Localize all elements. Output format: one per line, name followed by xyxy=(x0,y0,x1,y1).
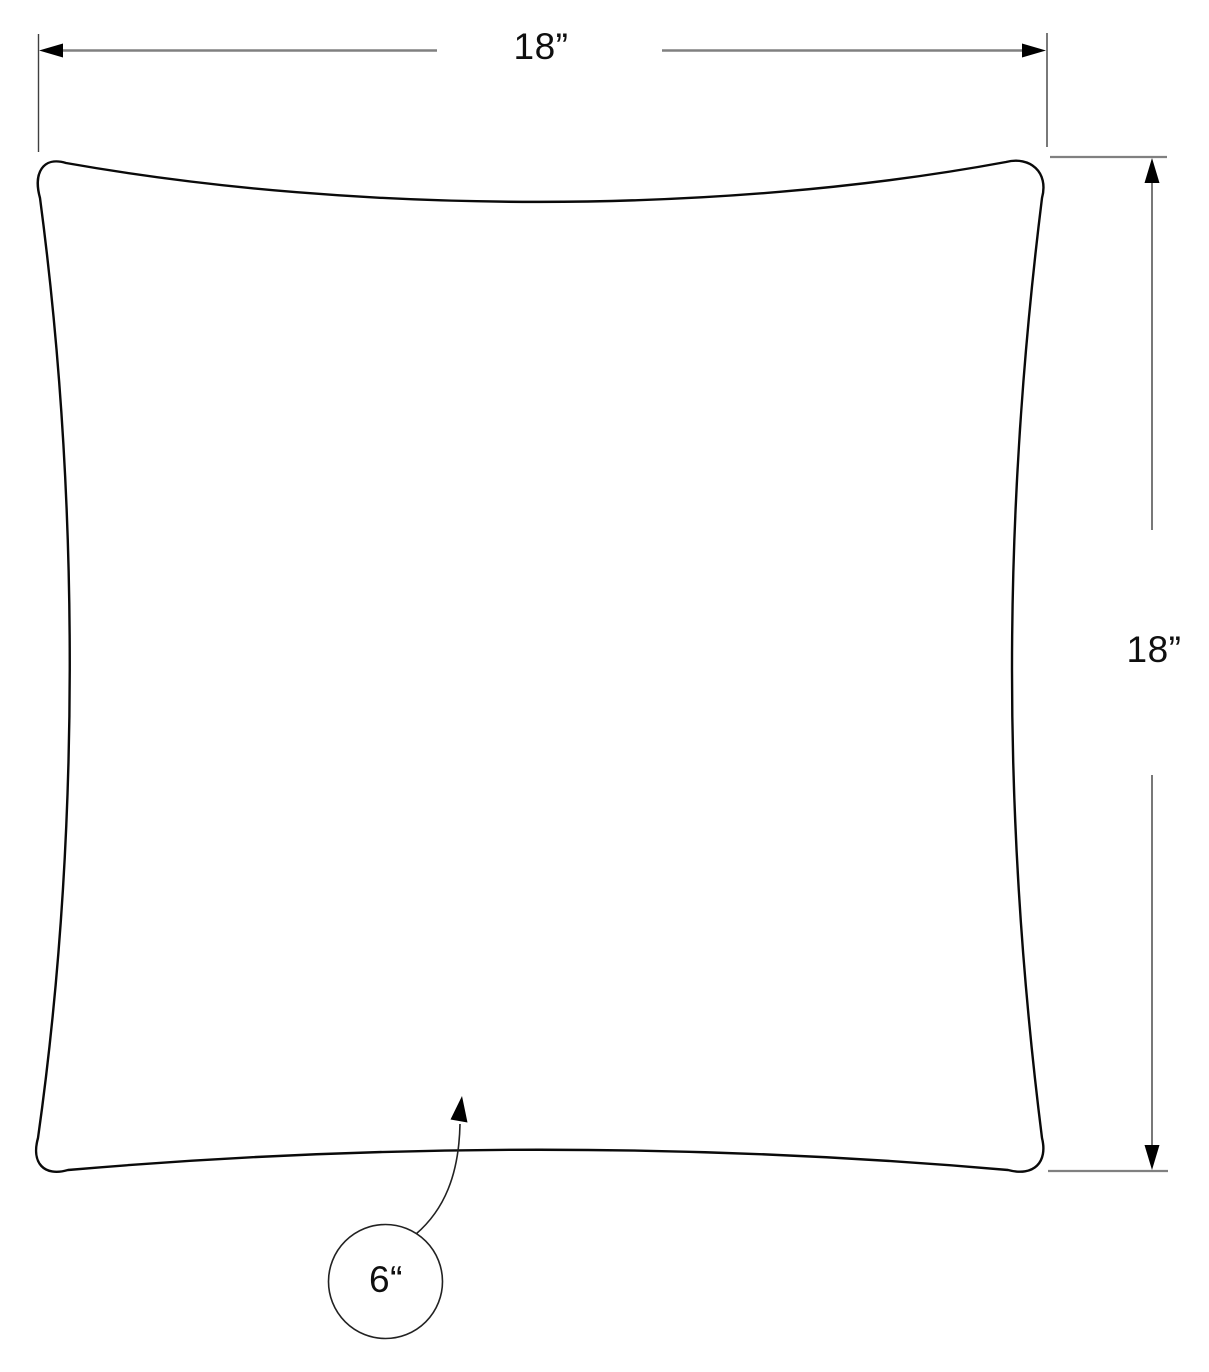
height-dimension-label: 18” xyxy=(1084,627,1209,673)
width-dimension-label: 18” xyxy=(471,24,611,70)
arrowhead-left-icon xyxy=(39,44,63,58)
arrowhead-up-icon xyxy=(1145,158,1160,183)
diagram-canvas xyxy=(0,0,1209,1372)
pillow-dimension-diagram: 18” 18” 6“ xyxy=(0,0,1209,1372)
arrowhead-down-icon xyxy=(1145,1145,1160,1170)
pillow-outline xyxy=(36,161,1043,1172)
callout-dimension-label: 6“ xyxy=(316,1257,456,1303)
callout-arrowhead-icon xyxy=(451,1096,468,1123)
callout-leader-line xyxy=(416,1124,460,1234)
arrowhead-right-icon xyxy=(1022,44,1046,58)
